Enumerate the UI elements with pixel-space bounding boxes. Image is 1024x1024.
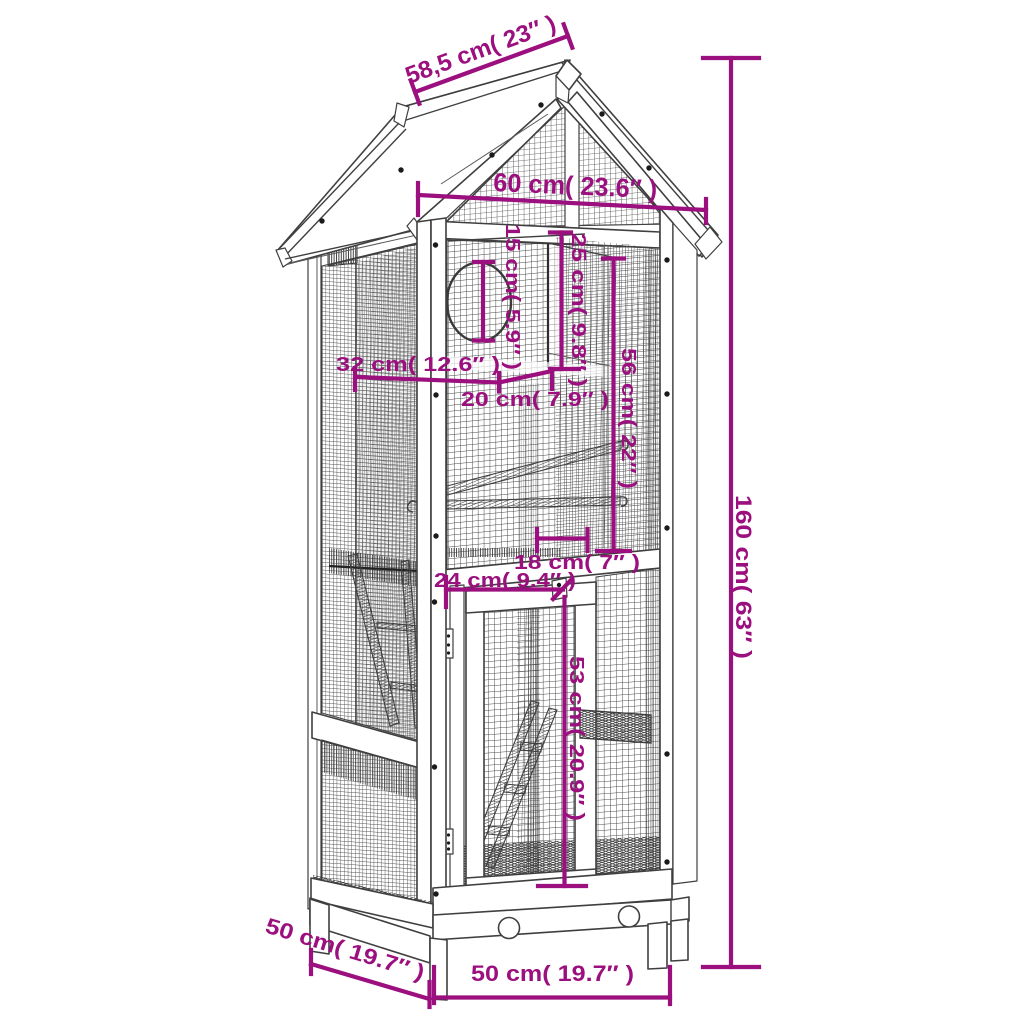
svg-text:24 cm( 9.4″ ): 24 cm( 9.4″ ) <box>434 570 576 592</box>
svg-text:15 cm( 5.9″ ): 15 cm( 5.9″ ) <box>501 224 523 370</box>
svg-text:160 cm( 63″ ): 160 cm( 63″ ) <box>731 495 756 659</box>
svg-text:50 cm( 19.7″ ): 50 cm( 19.7″ ) <box>471 961 634 986</box>
svg-text:32 cm( 12.6″ ): 32 cm( 12.6″ ) <box>336 354 500 376</box>
svg-text:53 cm( 20.9″ ): 53 cm( 20.9″ ) <box>565 656 587 821</box>
svg-text:25 cm( 9.8″ ): 25 cm( 9.8″ ) <box>567 233 589 387</box>
svg-text:20 cm( 7.9″ ): 20 cm( 7.9″ ) <box>461 389 609 411</box>
svg-text:56 cm( 22″ ): 56 cm( 22″ ) <box>617 348 639 489</box>
